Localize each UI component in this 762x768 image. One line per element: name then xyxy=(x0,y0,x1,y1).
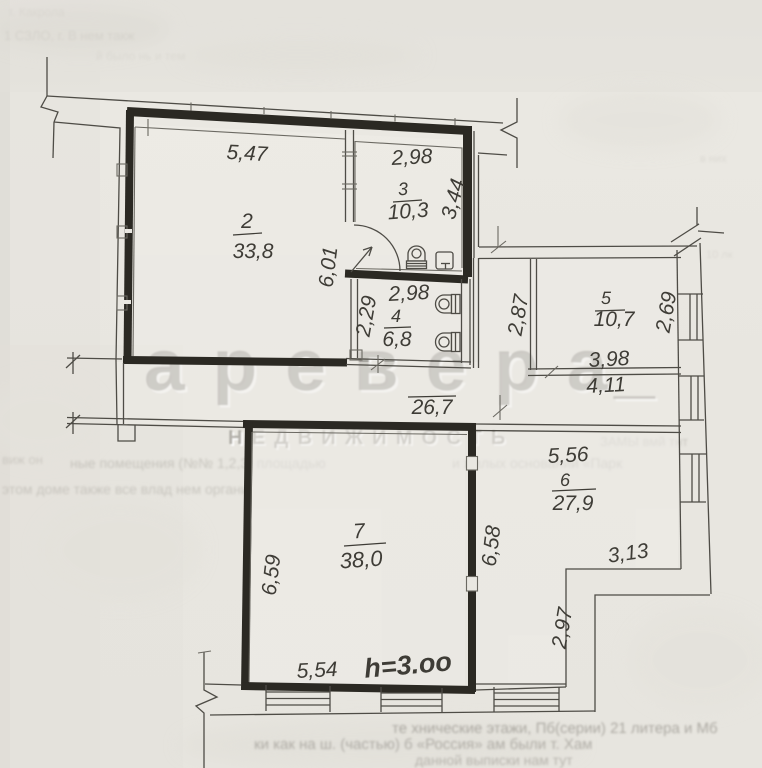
svg-text:5,54: 5,54 xyxy=(296,658,338,683)
svg-text:38,0: 38,0 xyxy=(339,545,384,573)
svg-text:5: 5 xyxy=(601,288,612,308)
svg-text:33,8: 33,8 xyxy=(233,240,274,263)
svg-text:2,98: 2,98 xyxy=(387,281,430,306)
svg-text:4,11: 4,11 xyxy=(586,373,626,398)
svg-text:в них: в них xyxy=(700,153,727,165)
svg-text:27,9: 27,9 xyxy=(552,492,594,515)
svg-text:1 СЗЛО, г. В нем такж: 1 СЗЛО, г. В нем такж xyxy=(4,28,135,43)
svg-text:этом доме также все влад нем о: этом доме также все влад нем органи xyxy=(2,481,249,497)
svg-text:26,7: 26,7 xyxy=(411,396,454,419)
svg-text:ки как на ш. (частью) б «Росс: ки как на ш. (частью) б «Россия» ам были… xyxy=(254,736,592,753)
svg-text:5,56: 5,56 xyxy=(547,443,589,468)
svg-text:данной выписки нам тут: данной выписки нам тут xyxy=(415,752,573,768)
svg-text:4: 4 xyxy=(391,306,401,326)
svg-text:те хнические этажи, Пб(серии): те хнические этажи, Пб(серии) 21 литера … xyxy=(392,720,718,737)
svg-text:3: 3 xyxy=(397,179,408,200)
svg-text:виж он: виж он xyxy=(2,452,43,467)
svg-text:5,47: 5,47 xyxy=(226,141,269,166)
svg-text:2,98: 2,98 xyxy=(390,145,433,170)
svg-text:10,7: 10,7 xyxy=(594,308,636,331)
svg-text:10 лк: 10 лк xyxy=(706,249,733,261)
svg-text:10,3: 10,3 xyxy=(387,199,430,225)
svg-text:6,8: 6,8 xyxy=(382,328,412,351)
svg-text:т. Какрола: т. Какрола xyxy=(8,5,65,19)
svg-text:2: 2 xyxy=(240,210,253,233)
svg-text:3,98: 3,98 xyxy=(588,347,630,372)
svg-text:й было нь и тем: й было нь и тем xyxy=(96,49,185,63)
svg-text:6: 6 xyxy=(560,470,571,490)
